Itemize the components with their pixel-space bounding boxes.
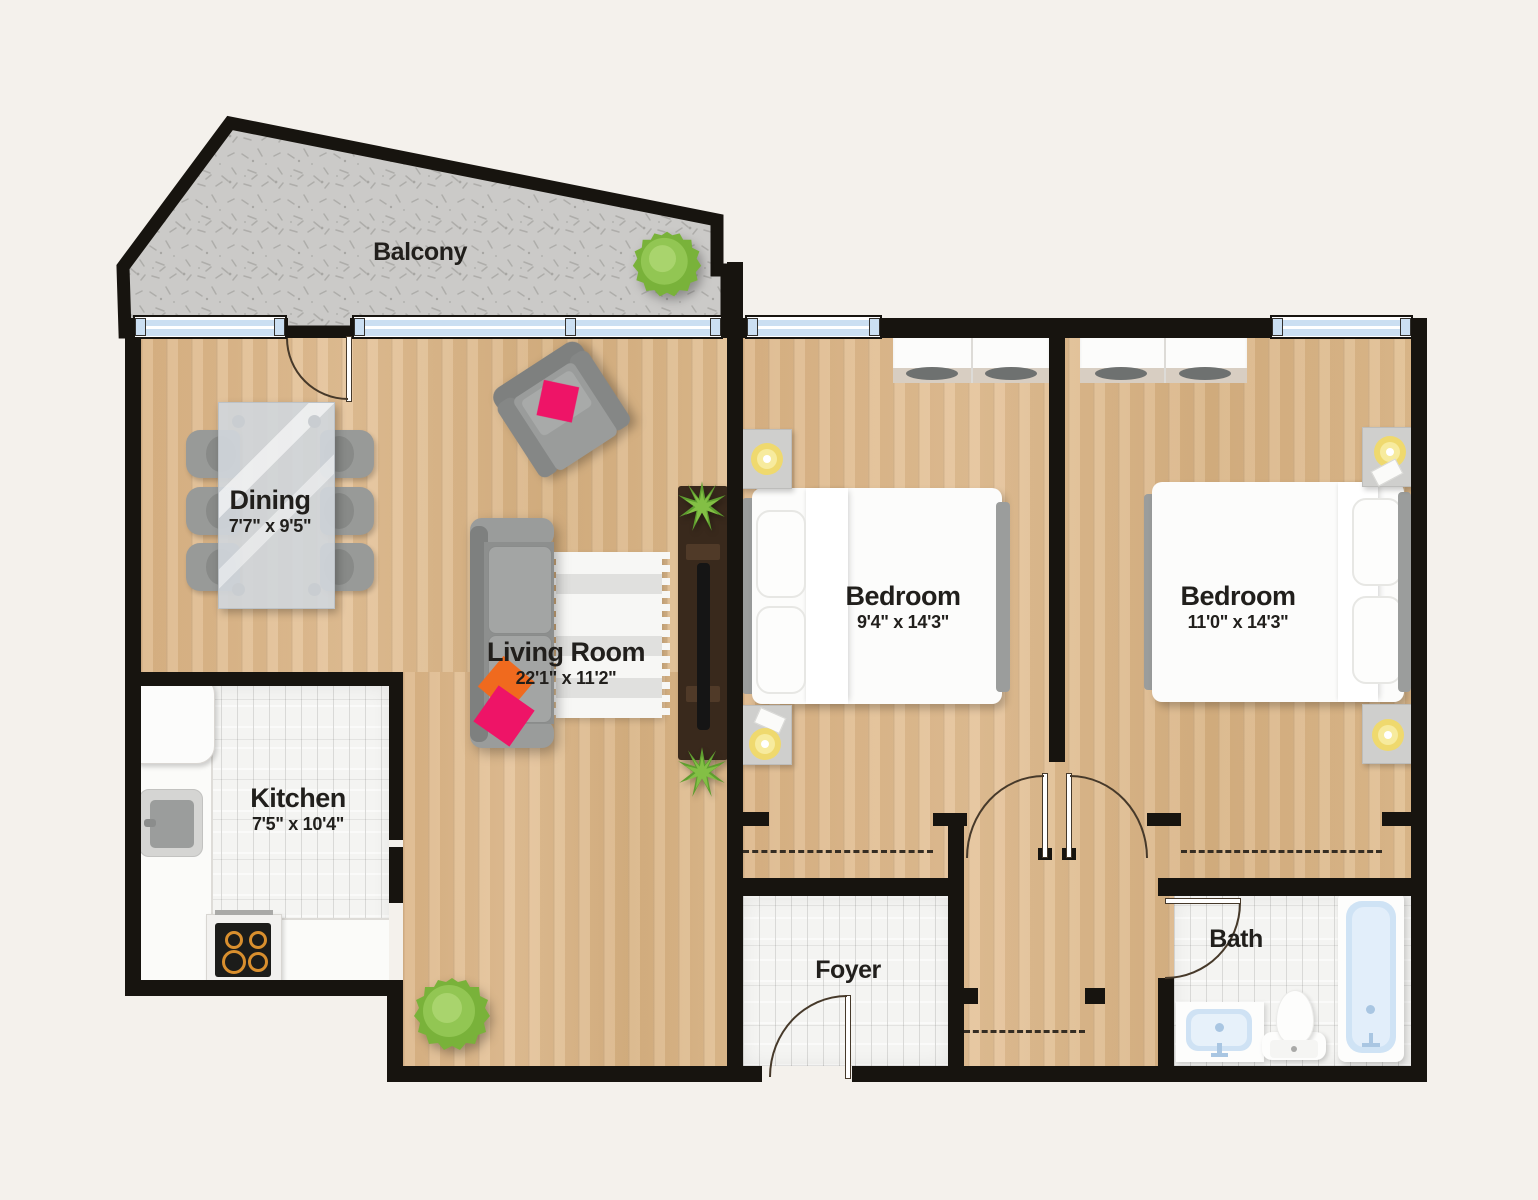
- wall: [125, 672, 403, 686]
- wall: [948, 826, 964, 1066]
- stove: [206, 914, 282, 984]
- bush-icon: [631, 228, 703, 300]
- window: [745, 315, 882, 339]
- room-label-balcony: Balcony: [320, 238, 520, 267]
- potted-plant-icon: [676, 746, 728, 798]
- closet-stub: [958, 988, 978, 1004]
- nightstand: [741, 429, 792, 489]
- burner-icon: [249, 931, 267, 949]
- window: [1270, 315, 1413, 339]
- lamp-icon: [1372, 719, 1404, 751]
- closet-dashed-line: [964, 1030, 1085, 1033]
- living-room-label: Living Room: [446, 638, 686, 666]
- dining-label: Dining: [170, 486, 370, 514]
- wall: [1049, 318, 1065, 762]
- wall: [852, 1066, 1427, 1082]
- room-label-bedroom-1: Bedroom 9'4" x 14'3": [783, 582, 1023, 633]
- wall: [389, 847, 403, 903]
- closet-stub: [1382, 812, 1412, 826]
- bush-icon: [412, 974, 492, 1054]
- wall: [1158, 978, 1174, 1066]
- lamp-icon: [751, 443, 783, 475]
- wall: [125, 318, 141, 996]
- potted-plant-icon: [676, 480, 728, 532]
- wardrobe: [1080, 338, 1247, 383]
- balcony-area: [100, 100, 750, 350]
- kitchen-dimensions: 7'5" x 10'4": [198, 814, 398, 835]
- closet-dashed-line: [1181, 850, 1382, 853]
- closet-dashed-line: [743, 850, 933, 853]
- kitchen-label: Kitchen: [198, 784, 398, 812]
- closet-stub: [1085, 988, 1105, 1004]
- window: [133, 315, 287, 339]
- floor-plan: Balcony Dining 7'7" x 9'5" Living Room 2…: [0, 0, 1538, 1200]
- sink-faucet: [144, 819, 156, 827]
- bedroom-1-dimensions: 9'4" x 14'3": [783, 612, 1023, 633]
- pink-pillow: [536, 380, 579, 423]
- fridge: [137, 676, 215, 764]
- pillow: [1352, 498, 1402, 586]
- bed-headboard: [1398, 492, 1411, 692]
- nightstand: [741, 705, 792, 765]
- room-label-living: Living Room 22'1" x 11'2": [446, 638, 686, 689]
- bathtub: [1338, 892, 1404, 1062]
- balcony-label: Balcony: [320, 238, 520, 267]
- wall: [1158, 878, 1427, 896]
- nightstand: [1362, 704, 1413, 764]
- bedroom-2-dimensions: 11'0" x 14'3": [1118, 612, 1358, 633]
- bathtub-basin: [1346, 901, 1396, 1053]
- bath-label: Bath: [1166, 925, 1306, 954]
- wall: [727, 262, 743, 1082]
- pillow: [1352, 596, 1402, 684]
- lamp-icon: [749, 728, 781, 760]
- bathroom-sink: [1186, 1009, 1252, 1051]
- rug-fringe: [662, 552, 670, 718]
- door-jamb: [1147, 813, 1181, 826]
- room-label-bath: Bath: [1166, 925, 1306, 954]
- burner-icon: [222, 950, 246, 974]
- kitchen-sink: [139, 789, 203, 857]
- cooktop: [215, 923, 271, 977]
- bedroom-1-label: Bedroom: [783, 582, 1023, 610]
- wall: [1411, 318, 1427, 1082]
- living-room-dimensions: 22'1" x 11'2": [446, 668, 686, 689]
- closet-stub: [739, 812, 769, 826]
- sink-basin: [150, 800, 194, 848]
- wall: [387, 1066, 762, 1082]
- room-label-foyer: Foyer: [768, 956, 928, 985]
- toilet: [1276, 990, 1314, 1044]
- room-label-kitchen: Kitchen 7'5" x 10'4": [198, 784, 398, 835]
- room-label-bedroom-2: Bedroom 11'0" x 14'3": [1118, 582, 1358, 633]
- toilet-tank: [1270, 1040, 1318, 1058]
- wall: [727, 878, 962, 896]
- burner-icon: [248, 952, 268, 972]
- wall: [125, 980, 403, 996]
- window: [352, 315, 723, 339]
- wardrobe: [893, 338, 1049, 383]
- burner-icon: [225, 931, 243, 949]
- stove-handle: [215, 910, 273, 915]
- room-label-dining: Dining 7'7" x 9'5": [170, 486, 370, 537]
- rug: [556, 552, 662, 718]
- bath-vanity: [1176, 1002, 1264, 1062]
- nightstand: [1362, 427, 1413, 487]
- sofa: [470, 518, 558, 748]
- wall: [387, 980, 403, 1082]
- foyer-label: Foyer: [768, 956, 928, 985]
- console-drawer: [686, 544, 720, 560]
- door-jamb: [933, 813, 967, 826]
- tv: [697, 563, 710, 730]
- bedroom-2-label: Bedroom: [1118, 582, 1358, 610]
- dining-dimensions: 7'7" x 9'5": [170, 516, 370, 537]
